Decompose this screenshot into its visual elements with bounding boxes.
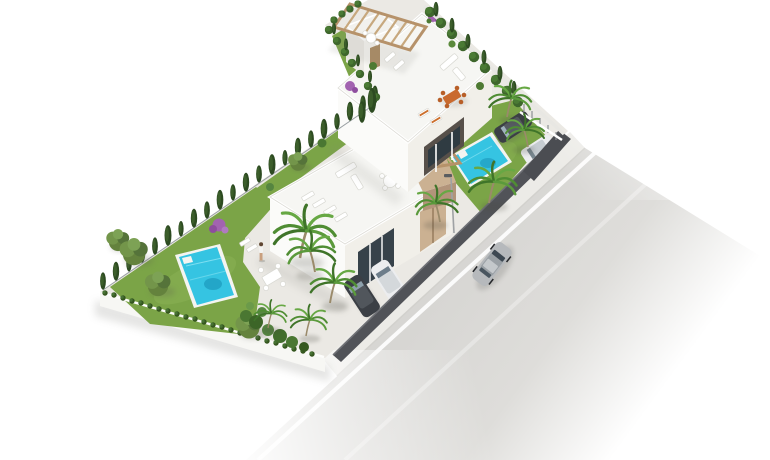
- road-fade-bottom: [140, 350, 540, 460]
- aerial-render-villas: [0, 0, 770, 460]
- roof-plant: [369, 62, 377, 70]
- tall-cypress: [358, 101, 365, 123]
- roof-plant: [448, 40, 455, 47]
- roof-plant: [476, 82, 484, 90]
- render-canvas: [0, 0, 770, 460]
- tall-cypress: [368, 88, 376, 113]
